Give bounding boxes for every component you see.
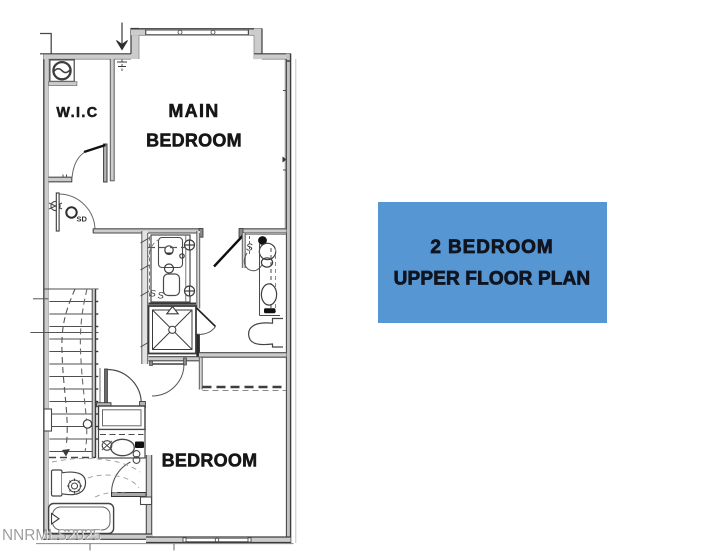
svg-text:NNRMLS2025: NNRMLS2025: [2, 527, 101, 544]
svg-text:W.I.C: W.I.C: [56, 105, 98, 121]
svg-text:S: S: [158, 291, 165, 302]
svg-text:MAIN: MAIN: [168, 101, 219, 121]
svg-text:SD: SD: [77, 215, 88, 224]
svg-text:BEDROOM: BEDROOM: [146, 131, 242, 151]
svg-text:S: S: [150, 289, 157, 300]
svg-text:UPPER FLOOR PLAN: UPPER FLOOR PLAN: [394, 269, 591, 290]
svg-text:2 BEDROOM: 2 BEDROOM: [430, 237, 553, 258]
svg-text:BEDROOM: BEDROOM: [162, 451, 258, 471]
